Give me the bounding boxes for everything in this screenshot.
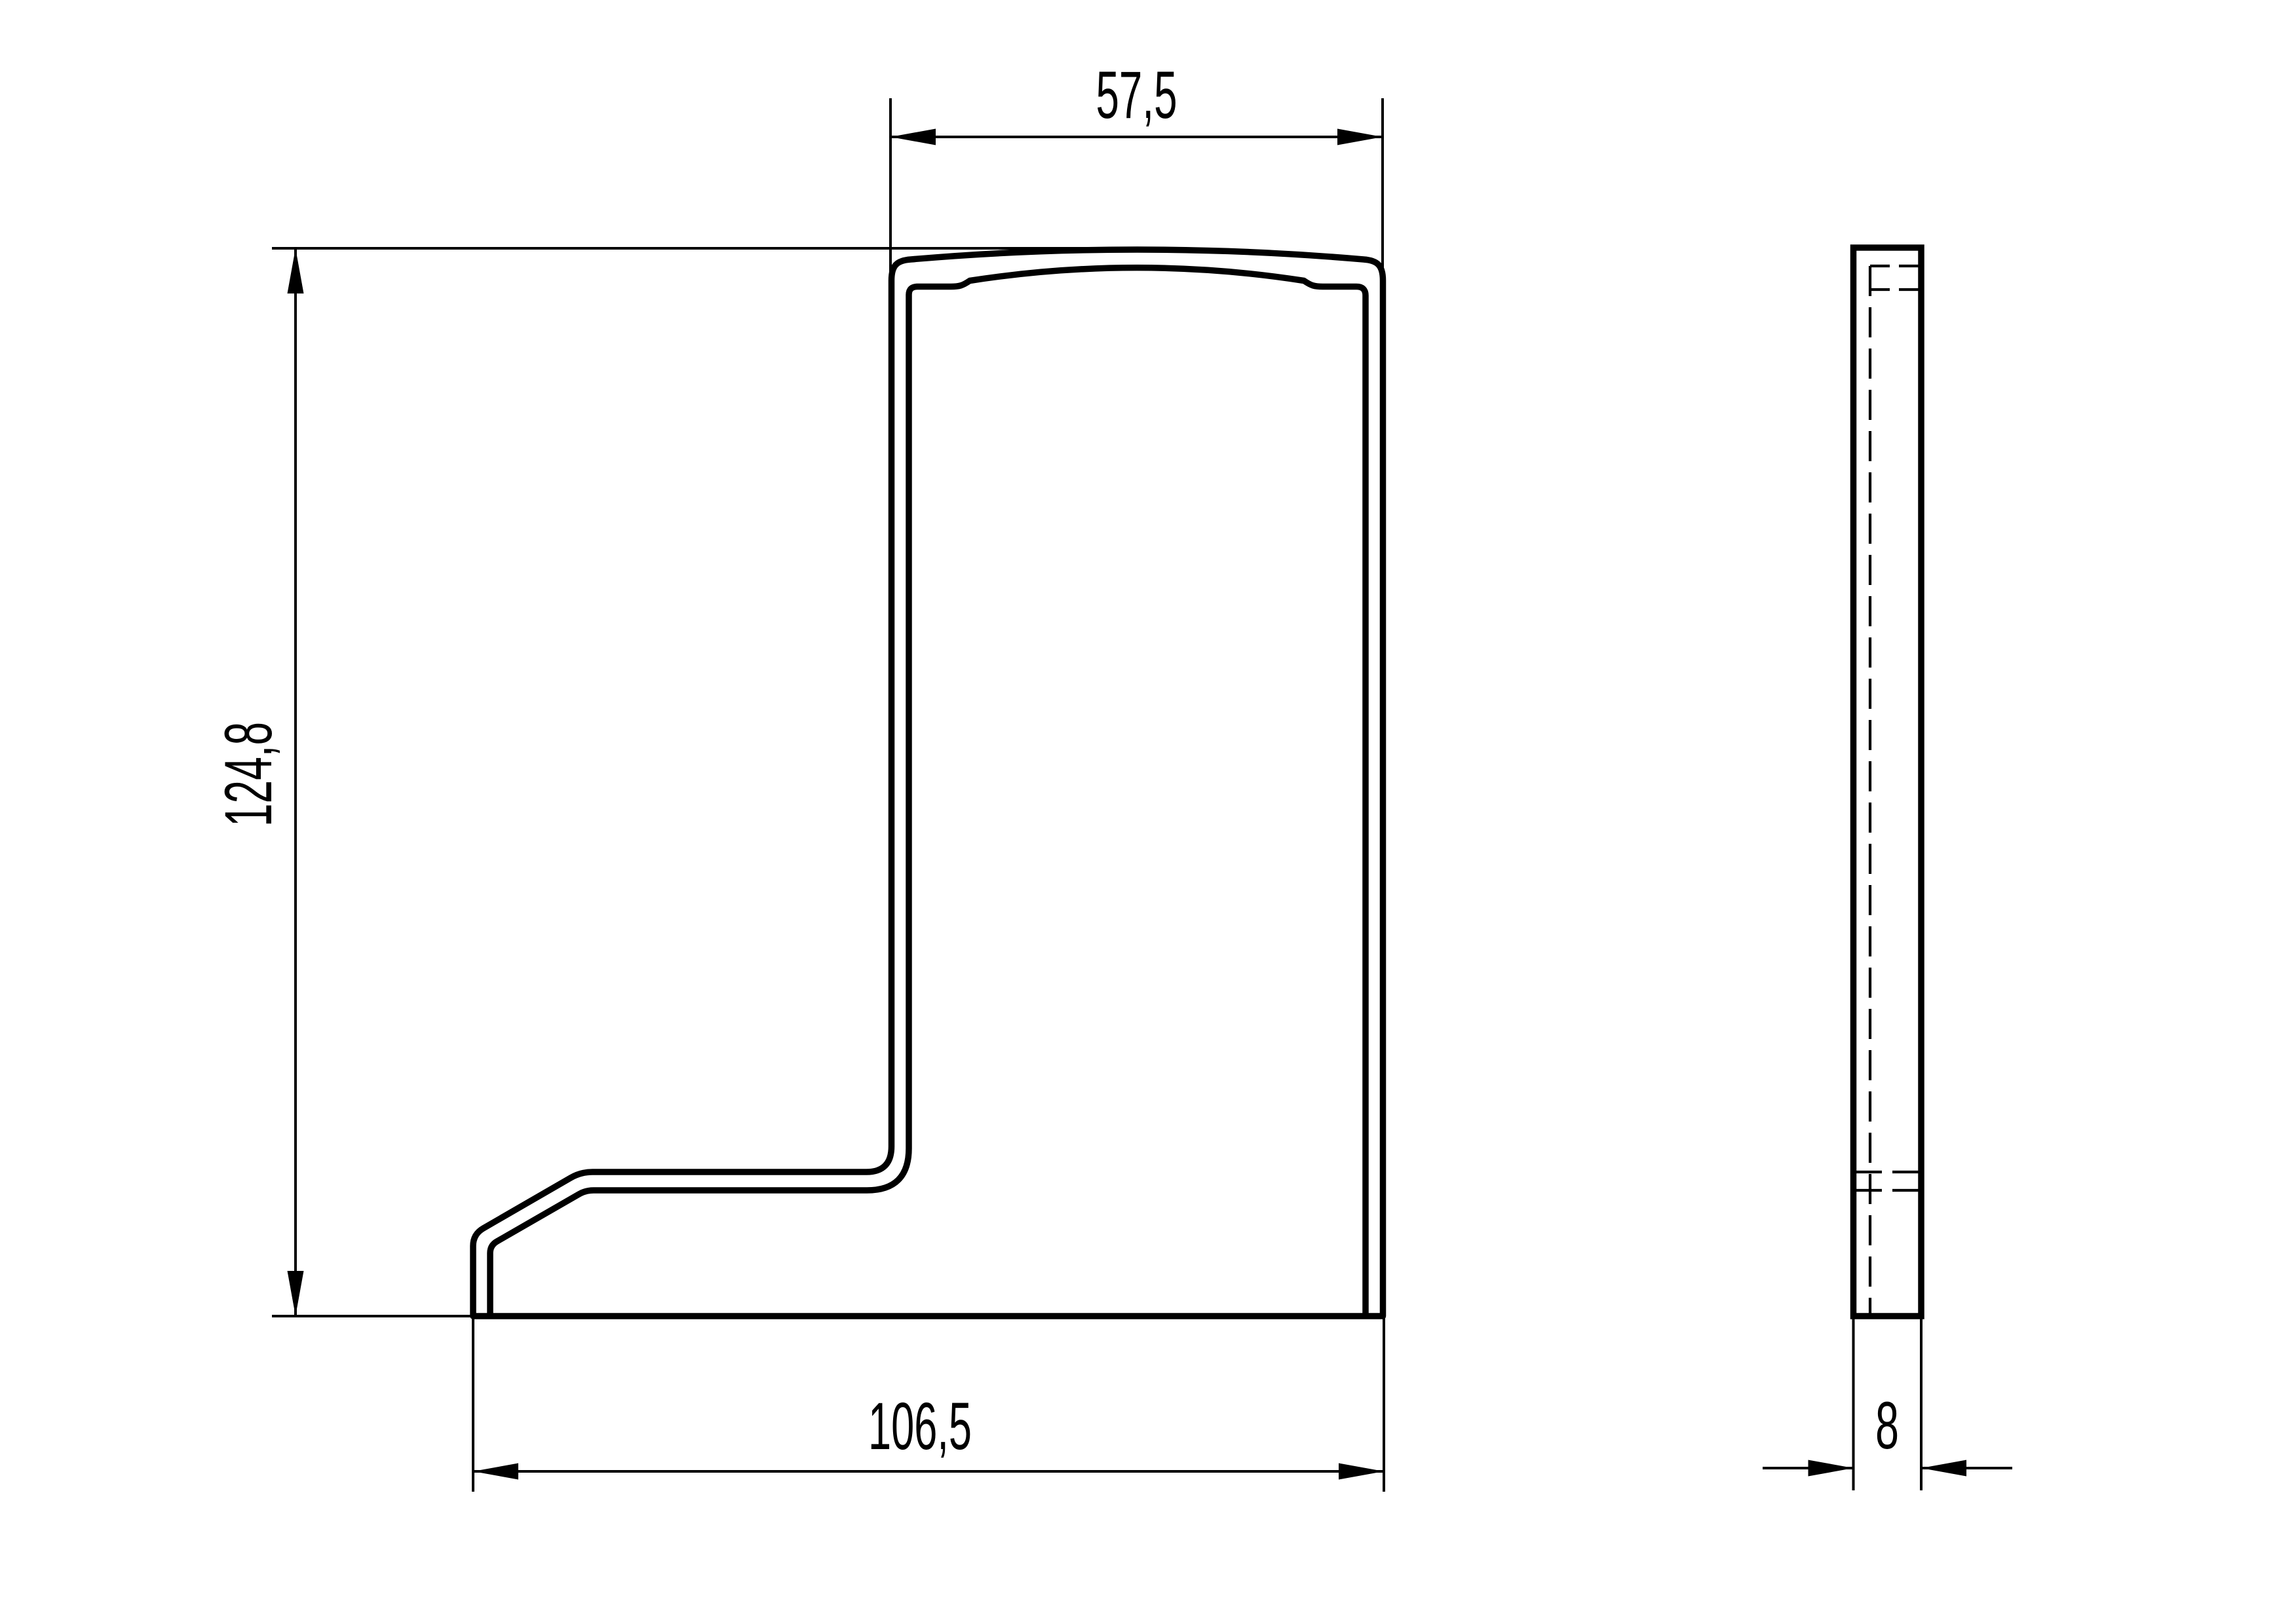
- svg-text:57,5: 57,5: [1096, 58, 1177, 132]
- svg-text:8: 8: [1875, 1388, 1899, 1463]
- svg-text:106,5: 106,5: [868, 1389, 972, 1463]
- svg-text:124,8: 124,8: [211, 722, 286, 827]
